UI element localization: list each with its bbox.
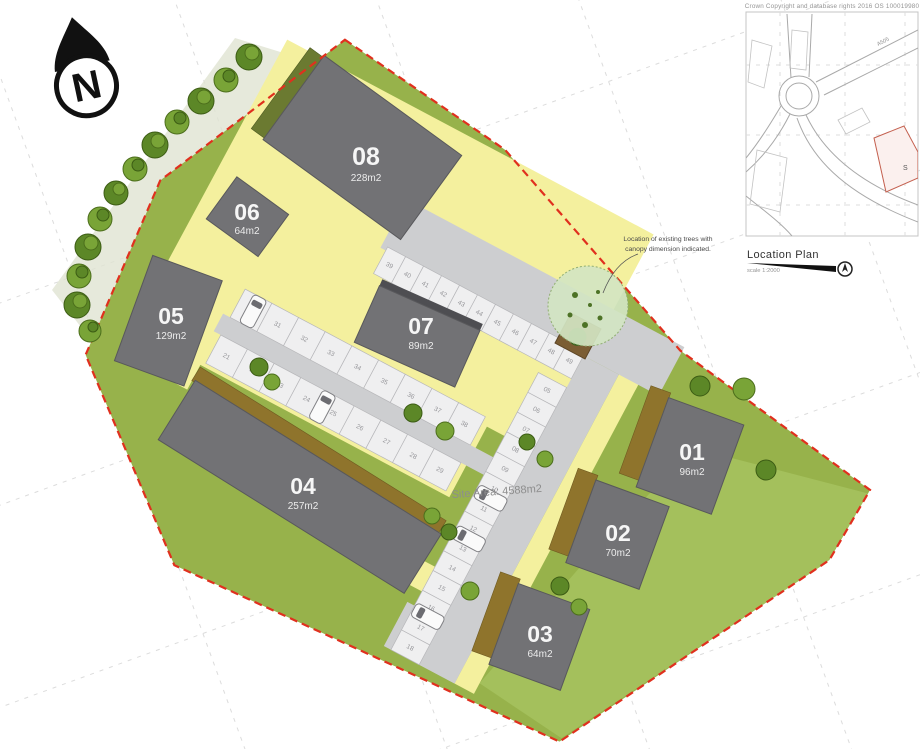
building-06-number: 06 bbox=[234, 199, 260, 225]
tree-annotation-line1: Location of existing trees with bbox=[623, 236, 712, 243]
tree-icon bbox=[165, 110, 189, 134]
tree-icon bbox=[690, 376, 710, 396]
tree-icon bbox=[441, 524, 457, 540]
location-plan-inset: S A505 bbox=[746, 12, 918, 236]
tree-icon bbox=[519, 434, 535, 450]
building-04-area: 257m2 bbox=[288, 501, 319, 512]
location-plan-title: Location Plan bbox=[747, 249, 819, 261]
tree-icon bbox=[733, 378, 755, 400]
inset-site-label: S bbox=[903, 165, 908, 172]
mini-compass-icon bbox=[838, 262, 852, 276]
building-05-number: 05 bbox=[158, 303, 184, 329]
north-arrow-icon: N bbox=[43, 11, 122, 121]
tree-icon bbox=[264, 374, 280, 390]
building-03-area: 64m2 bbox=[527, 649, 552, 660]
building-08-number: 08 bbox=[352, 143, 380, 171]
tree-icon bbox=[424, 508, 440, 524]
tree-icon bbox=[537, 451, 553, 467]
tree-icon bbox=[79, 320, 101, 342]
building-02-area: 70m2 bbox=[605, 548, 630, 559]
location-plan-scale: scale 1:2000 bbox=[747, 268, 780, 274]
tree-icon bbox=[571, 599, 587, 615]
tree-icon bbox=[88, 207, 112, 231]
tree-icon bbox=[75, 234, 101, 260]
building-01-area: 96m2 bbox=[679, 467, 704, 478]
tree-icon bbox=[214, 68, 238, 92]
building-04-number: 04 bbox=[290, 473, 316, 499]
tree-icon bbox=[123, 157, 147, 181]
building-03-number: 03 bbox=[527, 621, 553, 647]
tree-icon bbox=[64, 292, 90, 318]
building-07-area: 89m2 bbox=[408, 341, 433, 352]
building-06-area: 64m2 bbox=[234, 226, 259, 237]
building-05-area: 129m2 bbox=[156, 331, 187, 342]
tree-icon bbox=[461, 582, 479, 600]
copyright-text: Crown Copyright and database rights 2016… bbox=[745, 3, 920, 10]
tree-icon bbox=[236, 44, 262, 70]
building-02-number: 02 bbox=[605, 520, 631, 546]
tree-icon bbox=[67, 264, 91, 288]
tree-icon bbox=[551, 577, 569, 595]
tree-icon bbox=[188, 88, 214, 114]
tree-icon bbox=[104, 181, 128, 205]
building-01-number: 01 bbox=[679, 439, 705, 465]
tree-annotation-line2: canopy dimension indicated. bbox=[625, 246, 711, 253]
tree-icon bbox=[436, 422, 454, 440]
site-plan-page: 3940414243444546474849 30313233343536373… bbox=[0, 0, 920, 749]
building-08-area: 228m2 bbox=[351, 173, 382, 184]
building-07-number: 07 bbox=[408, 313, 434, 339]
tree-icon bbox=[756, 460, 776, 480]
tree-icon bbox=[142, 132, 168, 158]
tree-icon bbox=[404, 404, 422, 422]
tree-icon bbox=[250, 358, 268, 376]
site-plan-canvas: 3940414243444546474849 30313233343536373… bbox=[0, 0, 920, 749]
